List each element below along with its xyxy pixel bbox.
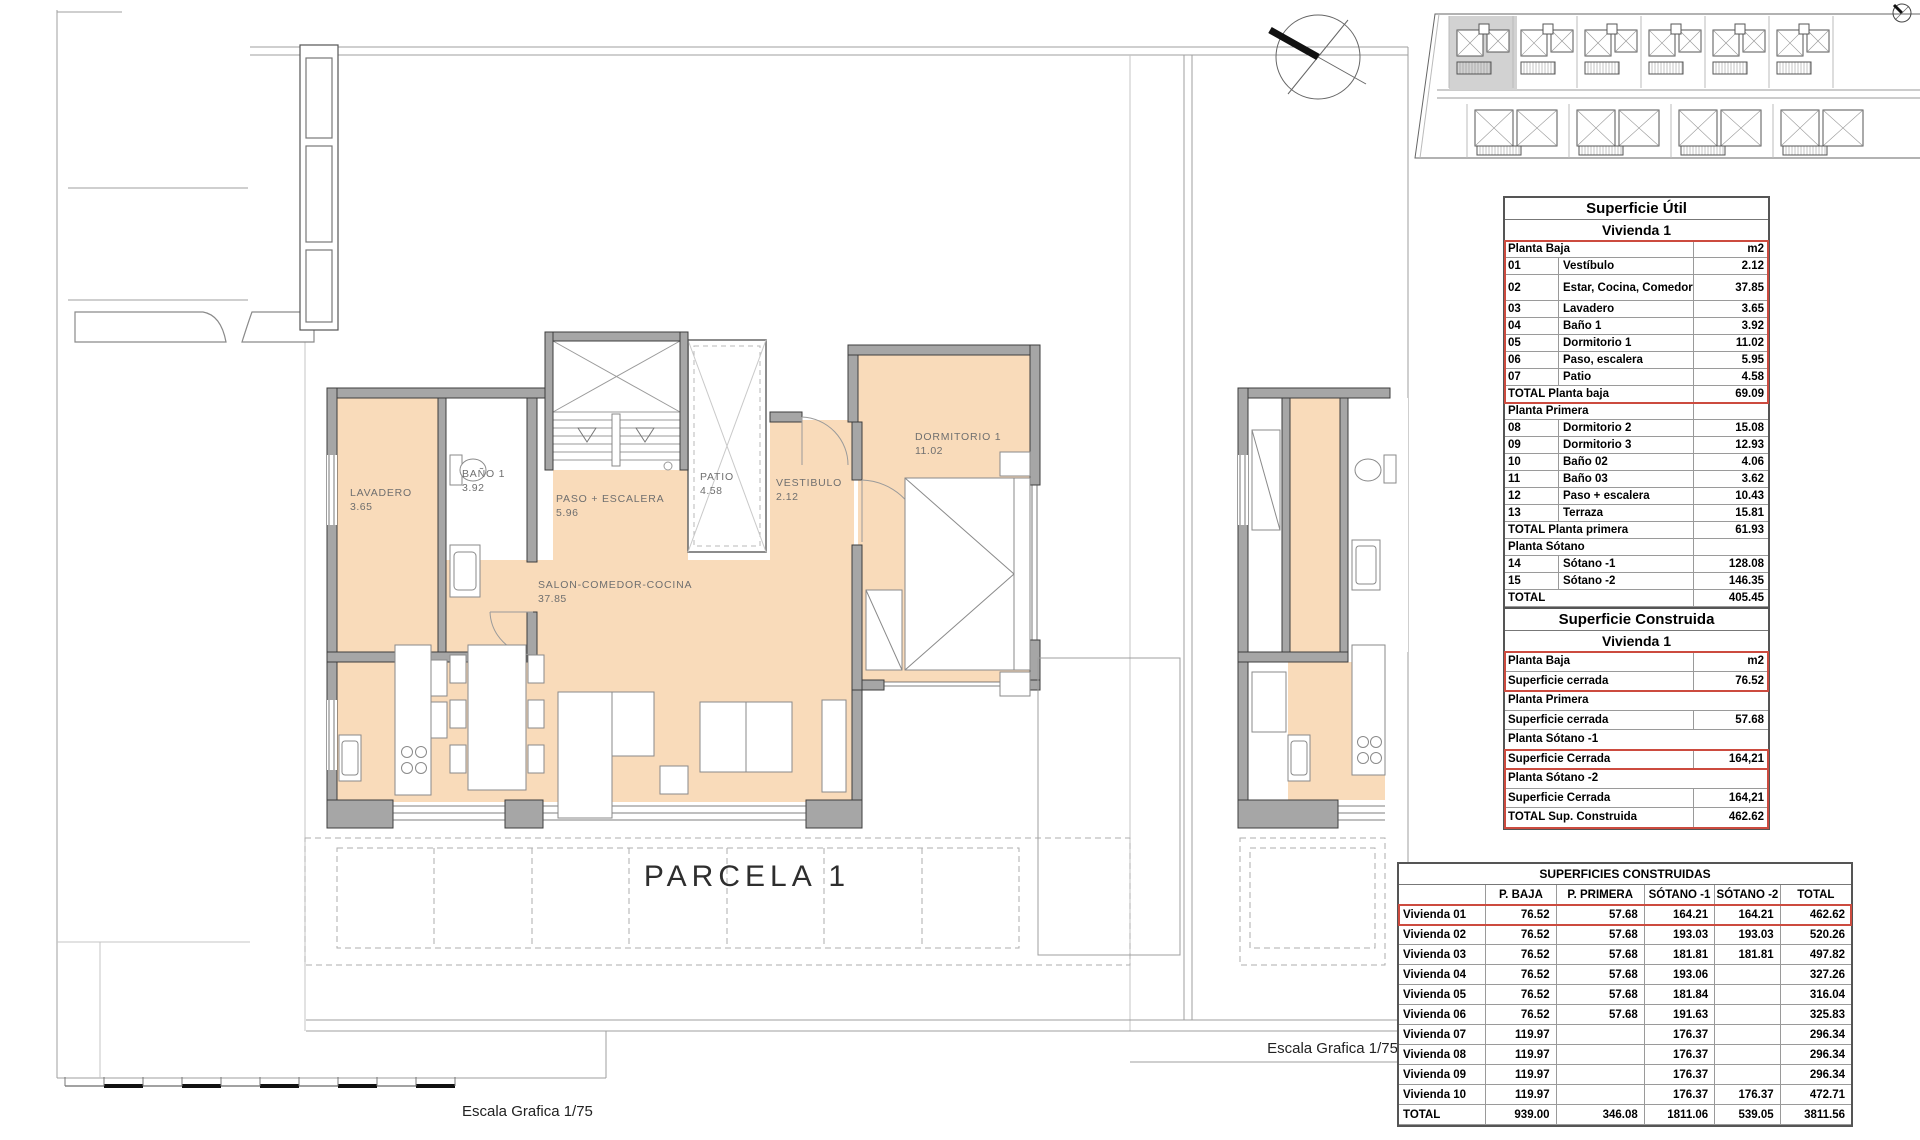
table-row: TOTAL Sup. Construida462.62	[1505, 808, 1768, 828]
column-header: TOTAL	[1781, 885, 1851, 904]
value-cell: 57.68	[1557, 1005, 1645, 1024]
terrace-dashed-grid	[305, 838, 1385, 965]
table-row: 07Patio4.58	[1505, 369, 1768, 386]
table-row: Vivienda 0176.5257.68164.21164.21462.62	[1399, 905, 1851, 925]
table-title: Superficie Útil	[1505, 198, 1768, 220]
value-cell: 176.37	[1715, 1085, 1780, 1104]
cell: 01	[1505, 258, 1559, 274]
architectural-plan-sheet: { "plan": { "labels": { "lavadero": {"na…	[0, 0, 1920, 1140]
cell: 03	[1505, 301, 1559, 317]
cell: 462.62	[1693, 808, 1768, 827]
cell: Paso, escalera	[1559, 354, 1693, 366]
table-row: Superficie Cerrada164,21	[1505, 750, 1768, 770]
table-row: Vivienda 0476.5257.68193.06327.26	[1399, 965, 1851, 985]
label-vestibulo: VESTIBULO	[776, 477, 842, 489]
table-title: SUPERFICIES CONSTRUIDAS	[1399, 864, 1851, 885]
cell: 02	[1505, 275, 1559, 300]
label-dormitorio: DORMITORIO 1	[915, 431, 1001, 443]
table-row: TOTAL939.00346.081811.06539.053811.56	[1399, 1105, 1851, 1125]
table-group: Planta Sótano -1	[1505, 730, 1768, 750]
cell: TOTAL Planta baja	[1505, 388, 1693, 400]
cell: Planta Baja	[1505, 243, 1693, 255]
table-row: Vivienda 0276.5257.68193.03193.03520.26	[1399, 925, 1851, 945]
row-name: Vivienda 04	[1399, 965, 1486, 984]
row-name: Vivienda 05	[1399, 985, 1486, 1004]
scale-bar	[65, 1077, 455, 1088]
value-cell	[1715, 1025, 1780, 1044]
value-cell: 193.03	[1645, 925, 1715, 944]
value-cell: 176.37	[1645, 1025, 1715, 1044]
row-name: Vivienda 08	[1399, 1045, 1486, 1064]
scale-label-bottom: Escala Grafica 1/75	[462, 1103, 593, 1120]
cell: 37.85	[1693, 275, 1768, 300]
section-total-row: TOTAL Planta baja69.09	[1505, 386, 1768, 403]
table-superficies-construidas: SUPERFICIES CONSTRUIDAS P. BAJAP. PRIMER…	[1397, 862, 1853, 1127]
value-cell: 164.21	[1715, 905, 1780, 924]
cell: Estar, Cocina, Comedor	[1559, 282, 1693, 294]
cell: 15.81	[1693, 505, 1768, 521]
value-cell: 520.26	[1781, 925, 1851, 944]
svg-text:3.92: 3.92	[462, 482, 484, 494]
cell: 3.62	[1693, 471, 1768, 487]
cell: Vestíbulo	[1559, 260, 1693, 272]
column-header: SÓTANO -2	[1715, 885, 1780, 904]
value-cell: 176.37	[1645, 1065, 1715, 1084]
column-header: P. BAJA	[1486, 885, 1556, 904]
value-cell: 57.68	[1557, 925, 1645, 944]
cell: 05	[1505, 335, 1559, 351]
row-name: Vivienda 03	[1399, 945, 1486, 964]
value-cell: 539.05	[1715, 1105, 1780, 1124]
table-row: Planta Sótano -1	[1505, 730, 1768, 750]
section-total-row: TOTAL405.45	[1505, 590, 1768, 607]
value-cell	[1715, 1005, 1780, 1024]
value-cell: 193.06	[1645, 965, 1715, 984]
value-cell	[1557, 1045, 1645, 1064]
table-title: Superficie Construida	[1505, 609, 1768, 631]
value-cell: 316.04	[1781, 985, 1851, 1004]
svg-text:3.65: 3.65	[350, 501, 372, 513]
svg-text:4.58: 4.58	[700, 485, 722, 497]
table-row: 12Paso + escalera10.43	[1505, 488, 1768, 505]
value-cell	[1557, 1065, 1645, 1084]
row-name: Vivienda 01	[1399, 905, 1486, 924]
cell: TOTAL Planta primera	[1505, 524, 1693, 536]
column-header: P. PRIMERA	[1557, 885, 1645, 904]
cell: 76.52	[1693, 672, 1768, 691]
row-name: Vivienda 07	[1399, 1025, 1486, 1044]
cell: 06	[1505, 352, 1559, 368]
pool-pad-outline	[1038, 658, 1180, 955]
table-row: 04Baño 13.92	[1505, 318, 1768, 335]
cell: 405.45	[1693, 590, 1768, 606]
cell: Terraza	[1559, 507, 1693, 519]
cell: Baño 02	[1559, 456, 1693, 468]
cell: 11.02	[1693, 335, 1768, 351]
value-cell: 181.81	[1715, 945, 1780, 964]
cell: 164,21	[1693, 789, 1768, 808]
cell: Superficie cerrada	[1505, 714, 1693, 726]
retaining-walls	[75, 312, 314, 342]
value-cell: 57.68	[1557, 965, 1645, 984]
cell: Planta Primera	[1505, 405, 1693, 417]
label-bano: BAÑO 1	[462, 467, 505, 480]
table-superficie-util: Superficie Útil Vivienda 1 Planta Bajam2…	[1503, 196, 1770, 609]
row-name: Vivienda 02	[1399, 925, 1486, 944]
cell: 13	[1505, 505, 1559, 521]
value-cell: 296.34	[1781, 1025, 1851, 1044]
staircase	[553, 341, 680, 470]
cell	[1693, 730, 1768, 749]
scale-label-right: Escala Grafica 1/75	[1267, 1040, 1398, 1057]
cell: 10.43	[1693, 488, 1768, 504]
cell: Planta Sótano -2	[1505, 772, 1693, 784]
table-row: Vivienda 0376.5257.68181.81181.81497.82	[1399, 945, 1851, 965]
cell: 07	[1505, 369, 1559, 385]
value-cell: 119.97	[1486, 1085, 1556, 1104]
svg-text:5.96: 5.96	[556, 507, 578, 519]
cell: 12	[1505, 488, 1559, 504]
value-cell: 346.08	[1557, 1105, 1645, 1124]
value-cell	[1557, 1025, 1645, 1044]
label-paso: PASO + ESCALERA	[556, 493, 664, 505]
cell: TOTAL Sup. Construida	[1505, 811, 1693, 823]
cell: Patio	[1559, 371, 1693, 383]
table-group: Planta Sótano -2Superficie Cerrada164,21…	[1505, 769, 1768, 828]
value-cell: 1811.06	[1645, 1105, 1715, 1124]
value-cell: 327.26	[1781, 965, 1851, 984]
table-row: Vivienda 10119.97176.37176.37472.71	[1399, 1085, 1851, 1105]
value-cell: 497.82	[1781, 945, 1851, 964]
table-row: 11Baño 033.62	[1505, 471, 1768, 488]
table-row: Vivienda 07119.97176.37296.34	[1399, 1025, 1851, 1045]
table-row: Planta Bajam2	[1505, 652, 1768, 672]
fence-section	[300, 45, 338, 330]
cell: Planta Baja	[1505, 655, 1693, 667]
section-total-row: TOTAL Planta primera61.93	[1505, 522, 1768, 539]
table-row: 02Estar, Cocina, Comedor37.85	[1505, 275, 1768, 301]
label-salon: SALON-COMEDOR-COCINA	[538, 579, 692, 591]
cell: Planta Sótano -1	[1505, 733, 1693, 745]
table-group: Planta PrimeraSuperficie cerrada57.68	[1505, 691, 1768, 730]
cell: 164,21	[1693, 750, 1768, 769]
cell: Baño 1	[1559, 320, 1693, 332]
cell: Superficie Cerrada	[1505, 792, 1693, 804]
parcela-title: PARCELA 1	[644, 860, 850, 893]
cell: 4.58	[1693, 369, 1768, 385]
value-cell: 57.68	[1557, 905, 1645, 924]
cell: 57.68	[1693, 711, 1768, 730]
cell: Lavadero	[1559, 303, 1693, 315]
patio-court	[688, 340, 766, 552]
cell: Dormitorio 2	[1559, 422, 1693, 434]
cell: Sótano -2	[1559, 575, 1693, 587]
value-cell: 76.52	[1486, 1005, 1556, 1024]
cell: 69.09	[1693, 386, 1768, 402]
table-row: Superficie cerrada76.52	[1505, 672, 1768, 692]
cell: m2	[1693, 652, 1768, 671]
cell: 3.92	[1693, 318, 1768, 334]
cell: Dormitorio 3	[1559, 439, 1693, 451]
value-cell: 76.52	[1486, 925, 1556, 944]
cell: 128.08	[1693, 556, 1768, 572]
table-group: Planta Bajam2Superficie cerrada76.52	[1505, 652, 1768, 691]
table-row: 06Paso, escalera5.95	[1505, 352, 1768, 369]
table-section: Planta Bajam201Vestíbulo2.1202Estar, Coc…	[1505, 241, 1768, 403]
cell: 146.35	[1693, 573, 1768, 589]
cell: Paso + escalera	[1559, 490, 1693, 502]
svg-text:2.12: 2.12	[776, 491, 798, 503]
table-row: 10Baño 024.06	[1505, 454, 1768, 471]
svg-text:37.85: 37.85	[538, 593, 567, 605]
table-row: 01Vestíbulo2.12	[1505, 258, 1768, 275]
cell: 2.12	[1693, 258, 1768, 274]
value-cell: 181.84	[1645, 985, 1715, 1004]
cell: Planta Primera	[1505, 694, 1693, 706]
table-section: Planta Primera08Dormitorio 215.0809Dormi…	[1505, 403, 1768, 539]
cell	[1693, 403, 1768, 419]
row-name: Vivienda 10	[1399, 1085, 1486, 1104]
cell	[1693, 539, 1768, 555]
value-cell: 939.00	[1486, 1105, 1556, 1124]
cell: 3.65	[1693, 301, 1768, 317]
value-cell: 164.21	[1645, 905, 1715, 924]
cell: TOTAL	[1505, 592, 1693, 604]
cell: 15.08	[1693, 420, 1768, 436]
value-cell: 76.52	[1486, 985, 1556, 1004]
value-cell: 57.68	[1557, 945, 1645, 964]
table-row: 15Sótano -2146.35	[1505, 573, 1768, 590]
header-row: P. BAJAP. PRIMERASÓTANO -1SÓTANO -2TOTAL	[1399, 885, 1851, 905]
cell: 15	[1505, 573, 1559, 589]
value-cell: 176.37	[1645, 1045, 1715, 1064]
value-cell: 462.62	[1781, 905, 1851, 924]
cell: 61.93	[1693, 522, 1768, 538]
table-row: 03Lavadero3.65	[1505, 301, 1768, 318]
section-header-row: Planta Primera	[1505, 403, 1768, 420]
table-subtitle: Vivienda 1	[1505, 631, 1768, 652]
cell: Baño 03	[1559, 473, 1693, 485]
cell: m2	[1693, 241, 1768, 257]
table-row: Vivienda 09119.97176.37296.34	[1399, 1065, 1851, 1085]
value-cell: 76.52	[1486, 905, 1556, 924]
value-cell	[1715, 1045, 1780, 1064]
value-cell: 176.37	[1645, 1085, 1715, 1104]
value-cell: 181.81	[1645, 945, 1715, 964]
table-superficie-construida: Superficie Construida Vivienda 1 Planta …	[1503, 607, 1770, 830]
value-cell	[1715, 985, 1780, 1004]
value-cell: 119.97	[1486, 1065, 1556, 1084]
table-group: Superficie Cerrada164,21	[1505, 750, 1768, 770]
section-header-row: Planta Bajam2	[1505, 241, 1768, 258]
value-cell: 191.63	[1645, 1005, 1715, 1024]
cell	[1693, 769, 1768, 788]
value-cell: 76.52	[1486, 965, 1556, 984]
floor-plan-drawing: LAVADERO 3.65 BAÑO 1 3.92 PASO + ESCALER…	[0, 0, 1410, 1140]
value-cell: 296.34	[1781, 1045, 1851, 1064]
value-cell: 325.83	[1781, 1005, 1851, 1024]
value-cell: 57.68	[1557, 985, 1645, 1004]
cell: 08	[1505, 420, 1559, 436]
table-row: 08Dormitorio 215.08	[1505, 420, 1768, 437]
table-row: 05Dormitorio 111.02	[1505, 335, 1768, 352]
row-name: Vivienda 09	[1399, 1065, 1486, 1084]
table-subtitle: Vivienda 1	[1505, 220, 1768, 241]
value-cell: 296.34	[1781, 1065, 1851, 1084]
svg-text:11.02: 11.02	[915, 445, 943, 457]
table-row: Vivienda 0576.5257.68181.84316.04	[1399, 985, 1851, 1005]
value-cell: 3811.56	[1781, 1105, 1851, 1124]
cell: 14	[1505, 556, 1559, 572]
table-row: Planta Primera	[1505, 691, 1768, 711]
value-cell	[1715, 1065, 1780, 1084]
table-row: Planta Sótano -2	[1505, 769, 1768, 789]
table-row: Vivienda 08119.97176.37296.34	[1399, 1045, 1851, 1065]
label-lavadero: LAVADERO	[350, 487, 412, 499]
value-cell	[1557, 1085, 1645, 1104]
cell: 04	[1505, 318, 1559, 334]
cell: 09	[1505, 437, 1559, 453]
site-plan-drawing	[1405, 0, 1920, 175]
section-header-row: Planta Sótano	[1505, 539, 1768, 556]
value-cell: 119.97	[1486, 1025, 1556, 1044]
cell: Planta Sótano	[1505, 541, 1693, 553]
cell: 11	[1505, 471, 1559, 487]
table-row: Vivienda 0676.5257.68191.63325.83	[1399, 1005, 1851, 1025]
column-header: SÓTANO -1	[1645, 885, 1715, 904]
value-cell: 472.71	[1781, 1085, 1851, 1104]
north-compass-icon	[1270, 15, 1366, 99]
value-cell: 76.52	[1486, 945, 1556, 964]
cell: 10	[1505, 454, 1559, 470]
cell: Superficie Cerrada	[1505, 753, 1693, 765]
label-patio: PATIO	[700, 471, 734, 483]
adjacent-house-partial	[1238, 388, 1408, 828]
cell: Superficie cerrada	[1505, 675, 1693, 687]
cell: Sótano -1	[1559, 558, 1693, 570]
row-name: Vivienda 06	[1399, 1005, 1486, 1024]
value-cell: 193.03	[1715, 925, 1780, 944]
column-header	[1399, 885, 1486, 904]
table-row: 09Dormitorio 312.93	[1505, 437, 1768, 454]
row-name: TOTAL	[1399, 1105, 1486, 1124]
value-cell: 119.97	[1486, 1045, 1556, 1064]
cell: 12.93	[1693, 437, 1768, 453]
table-row: 14Sótano -1128.08	[1505, 556, 1768, 573]
table-section: Planta Sótano14Sótano -1128.0815Sótano -…	[1505, 539, 1768, 607]
cell: 4.06	[1693, 454, 1768, 470]
cell: Dormitorio 1	[1559, 337, 1693, 349]
table-row: 13Terraza15.81	[1505, 505, 1768, 522]
value-cell	[1715, 965, 1780, 984]
cell	[1693, 691, 1768, 710]
cell: 5.95	[1693, 352, 1768, 368]
table-row: Superficie cerrada57.68	[1505, 711, 1768, 731]
table-row: Superficie Cerrada164,21	[1505, 789, 1768, 809]
